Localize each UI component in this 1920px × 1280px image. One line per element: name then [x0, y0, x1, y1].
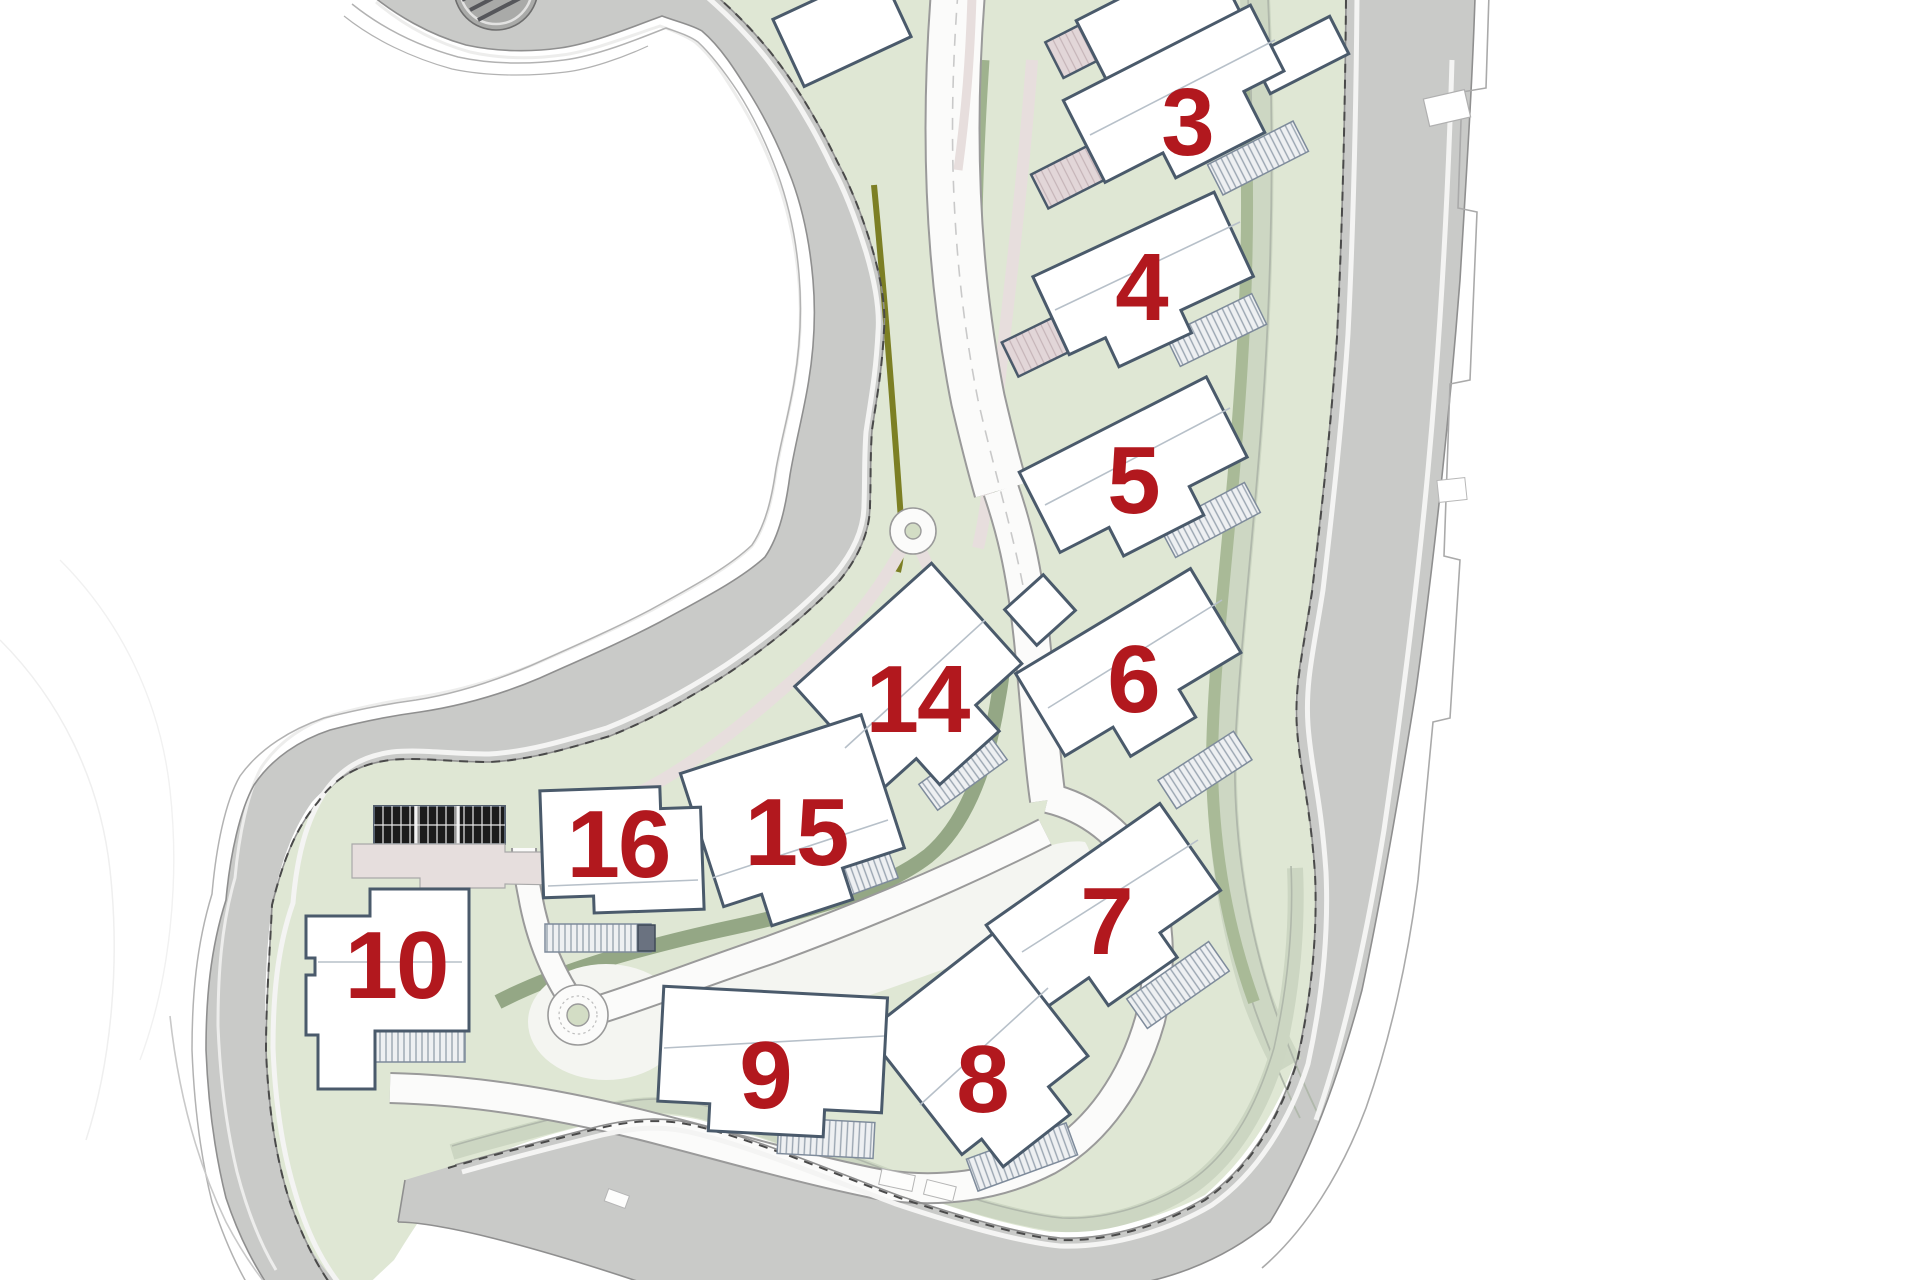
svg-text:7: 7 [1080, 868, 1131, 975]
svg-text:8: 8 [956, 1026, 1007, 1133]
svg-text:10: 10 [345, 912, 448, 1019]
svg-text:16: 16 [567, 791, 670, 898]
svg-text:3: 3 [1161, 69, 1212, 176]
svg-text:9: 9 [739, 1022, 790, 1129]
svg-text:5: 5 [1107, 427, 1158, 534]
svg-text:6: 6 [1107, 626, 1158, 733]
svg-text:15: 15 [745, 779, 848, 886]
svg-text:14: 14 [866, 646, 970, 753]
svg-text:4: 4 [1115, 234, 1168, 341]
